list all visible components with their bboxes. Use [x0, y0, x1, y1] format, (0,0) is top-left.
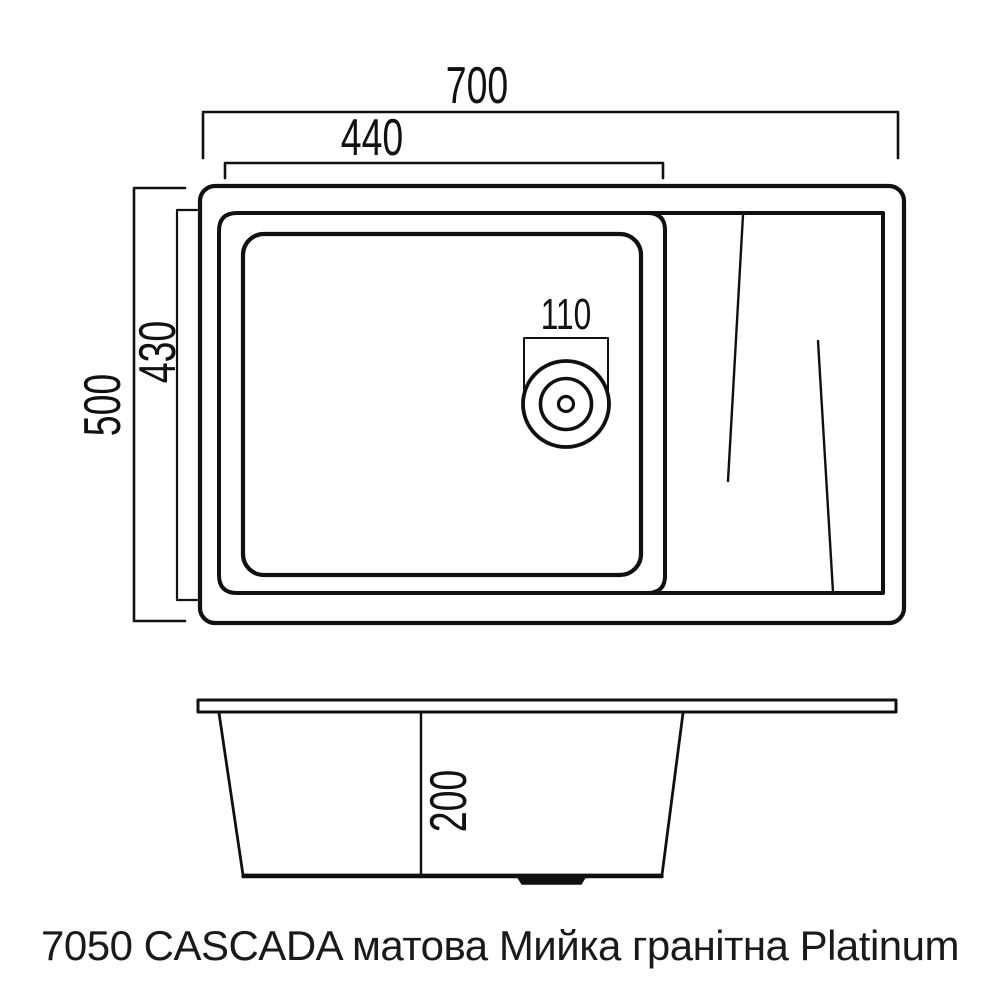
sink-dimension-diagram: 700 440 500 430 110 200 7050 CASCADA мат… — [0, 0, 1000, 1000]
side-view — [198, 700, 896, 884]
countertop-slab — [198, 700, 896, 712]
sink-bowl — [243, 234, 641, 575]
product-caption: 7050 CASCADA матова Мийка гранітна Plati… — [0, 922, 1000, 970]
label-drain-diameter: 110 — [541, 293, 592, 337]
label-bowl-height: 200 — [423, 770, 475, 832]
label-total-depth: 500 — [77, 374, 129, 436]
top-view — [134, 112, 904, 623]
label-bowl-width: 440 — [341, 112, 403, 164]
label-bowl-depth: 430 — [132, 321, 184, 383]
technical-drawing — [0, 0, 1000, 1000]
drain-stub — [517, 876, 586, 884]
dim-line-bowl-depth — [177, 210, 197, 600]
dim-line-bowl-width — [225, 163, 663, 178]
dim-line-total-width — [203, 112, 898, 158]
label-total-width: 700 — [446, 60, 508, 112]
